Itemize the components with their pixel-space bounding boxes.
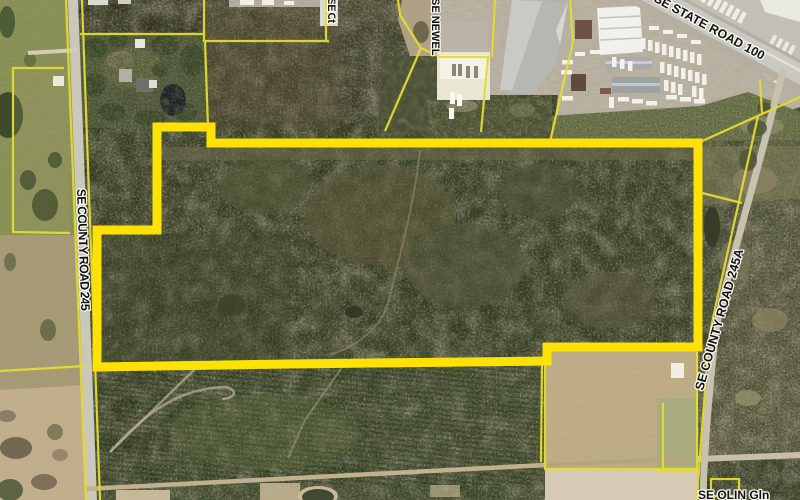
- svg-text:SE Ct: SE Ct: [325, 0, 337, 23]
- svg-text:SE OLIN Gln: SE OLIN Gln: [698, 488, 769, 500]
- svg-text:SE NEWEL: SE NEWEL: [429, 0, 441, 56]
